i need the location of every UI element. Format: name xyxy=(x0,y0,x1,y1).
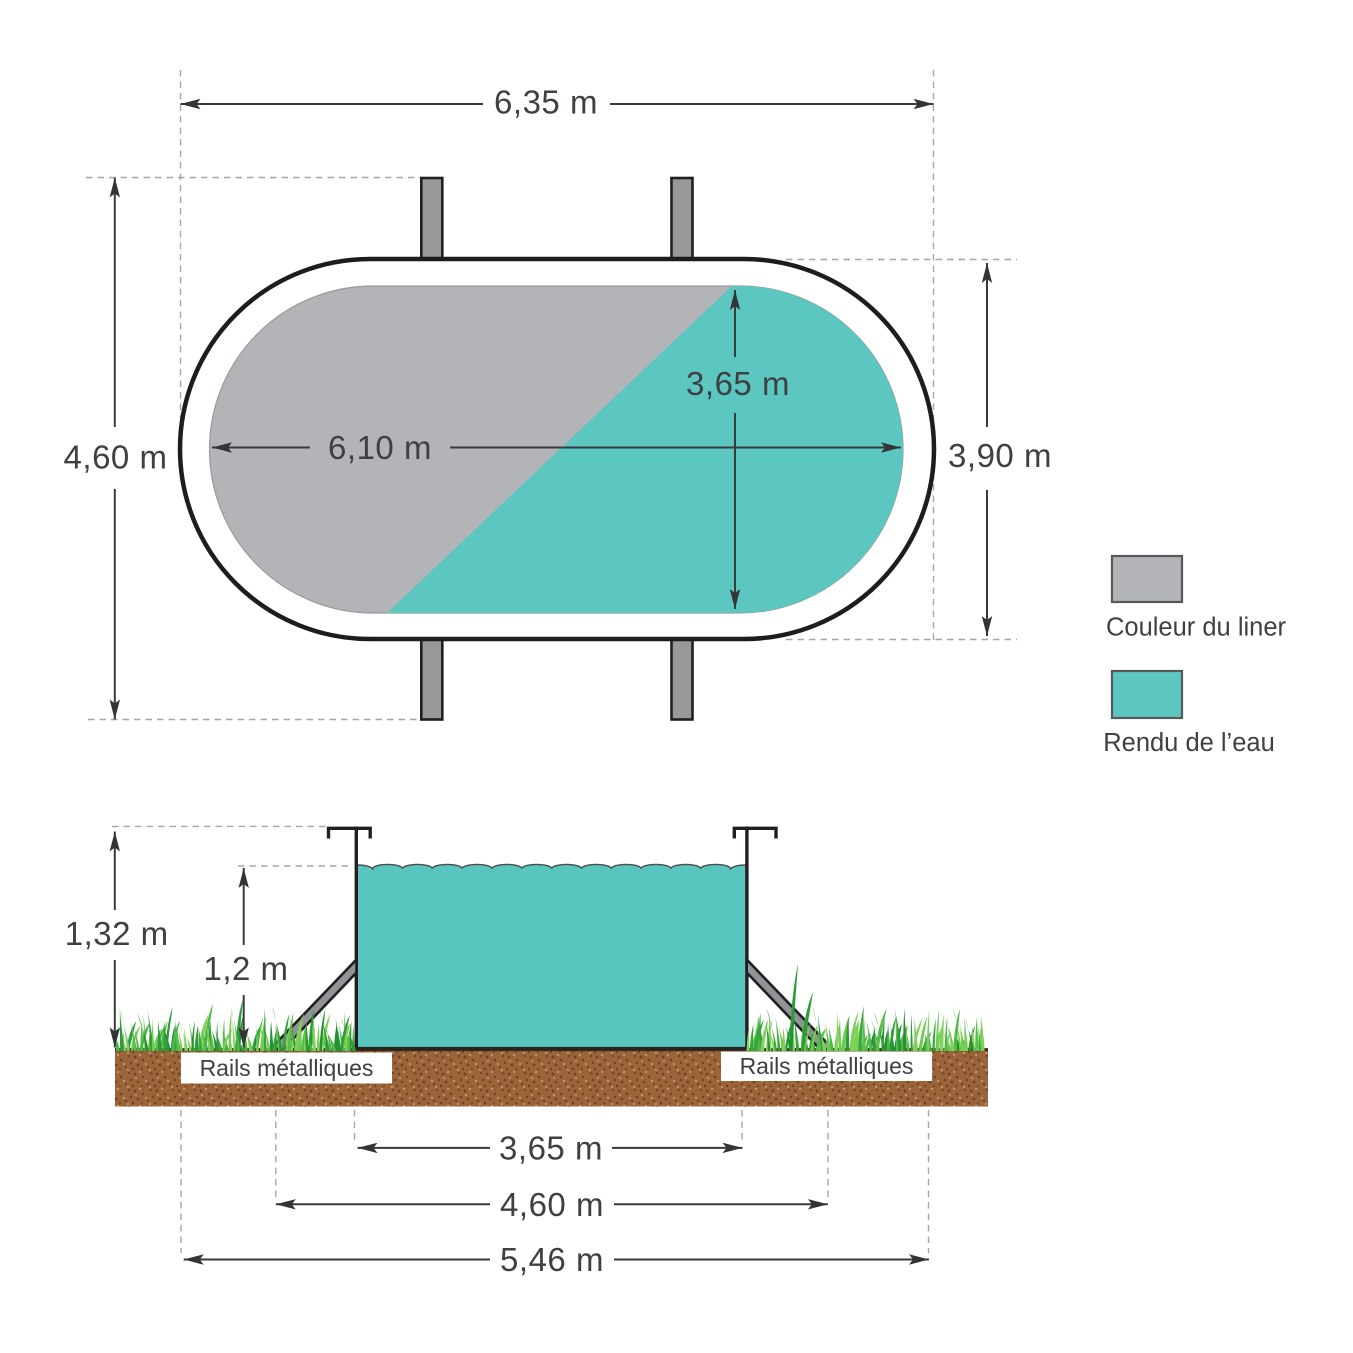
svg-text:1,32 m: 1,32 m xyxy=(65,915,169,952)
svg-text:5,46 m: 5,46 m xyxy=(500,1241,604,1278)
svg-text:6,35 m: 6,35 m xyxy=(494,84,598,121)
svg-text:4,60 m: 4,60 m xyxy=(500,1186,604,1223)
svg-text:3,90 m: 3,90 m xyxy=(948,437,1052,474)
svg-text:3,65 m: 3,65 m xyxy=(499,1130,603,1167)
svg-text:Rendu de l’eau: Rendu de l’eau xyxy=(1103,729,1275,757)
svg-text:Couleur du liner: Couleur du liner xyxy=(1106,614,1287,642)
svg-text:Rails métalliques: Rails métalliques xyxy=(200,1055,374,1081)
svg-text:Rails métalliques: Rails métalliques xyxy=(740,1053,914,1079)
svg-text:4,60 m: 4,60 m xyxy=(64,439,168,476)
svg-text:3,65 m: 3,65 m xyxy=(686,365,790,402)
svg-text:6,10 m: 6,10 m xyxy=(328,429,432,466)
svg-text:1,2 m: 1,2 m xyxy=(203,950,288,987)
